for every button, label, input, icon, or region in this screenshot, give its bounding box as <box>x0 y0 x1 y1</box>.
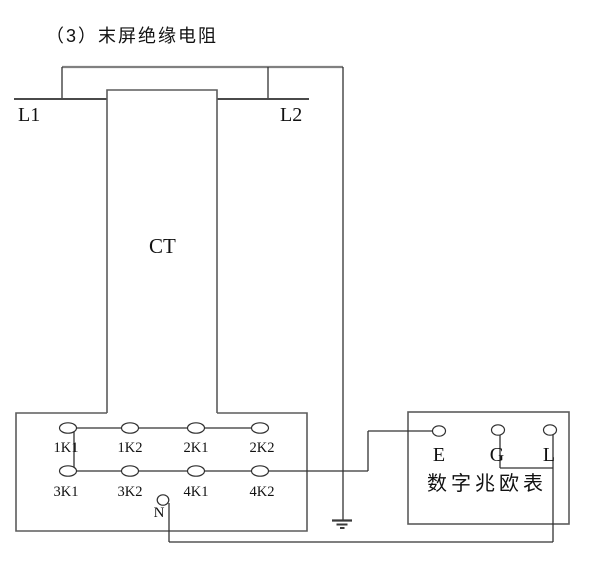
ct-label: CT <box>149 234 176 258</box>
label-1k2: 1K2 <box>118 440 143 456</box>
label-g: G <box>490 444 504 466</box>
terminal-1k1 <box>60 423 77 433</box>
terminal-4k1 <box>188 466 205 476</box>
label-e: E <box>433 444 445 466</box>
label-3k2: 3K2 <box>118 484 143 500</box>
terminal-3k1 <box>60 466 77 476</box>
label-l: L <box>543 444 555 466</box>
wiring-diagram-page: （3）末屏绝缘电阻 <box>0 0 603 580</box>
label-3k1: 3K1 <box>54 484 79 500</box>
label-2k1: 2K1 <box>184 440 209 456</box>
megohmmeter-terminal-e <box>433 426 446 436</box>
label-2k2: 2K2 <box>250 440 275 456</box>
terminal-2k1 <box>188 423 205 433</box>
label-4k1: 4K1 <box>184 484 209 500</box>
megohmmeter-terminal-l <box>544 425 557 435</box>
terminal-1k2 <box>122 423 139 433</box>
label-4k2: 4K2 <box>250 484 275 500</box>
megohmmeter-terminal-g <box>492 425 505 435</box>
terminal-n <box>157 495 169 505</box>
terminal-4k2 <box>252 466 269 476</box>
ct-end-screen-test-diagram: L1 L2 CT 1K1 1K2 2K1 2K2 3K1 3K2 4K1 4K2… <box>0 0 603 580</box>
terminal-3k2 <box>122 466 139 476</box>
terminal-2k2 <box>252 423 269 433</box>
label-n: N <box>154 505 165 521</box>
earth-ground-icon <box>332 521 352 529</box>
l1-label: L1 <box>18 104 40 126</box>
megohmmeter-label: 数字兆欧表 <box>427 472 547 495</box>
l2-label: L2 <box>280 104 302 126</box>
label-1k1: 1K1 <box>54 440 79 456</box>
